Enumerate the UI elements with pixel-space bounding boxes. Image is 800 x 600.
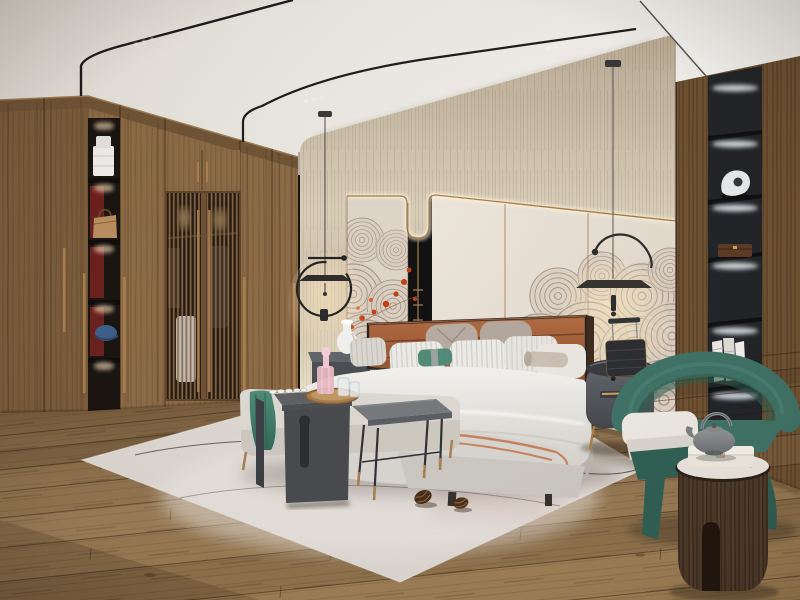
vignette-overlay — [0, 0, 800, 600]
bedroom-render: Modern bedroom interior - 3D render — [0, 0, 800, 600]
scene-canvas: Modern bedroom interior - 3D render — [0, 0, 800, 600]
